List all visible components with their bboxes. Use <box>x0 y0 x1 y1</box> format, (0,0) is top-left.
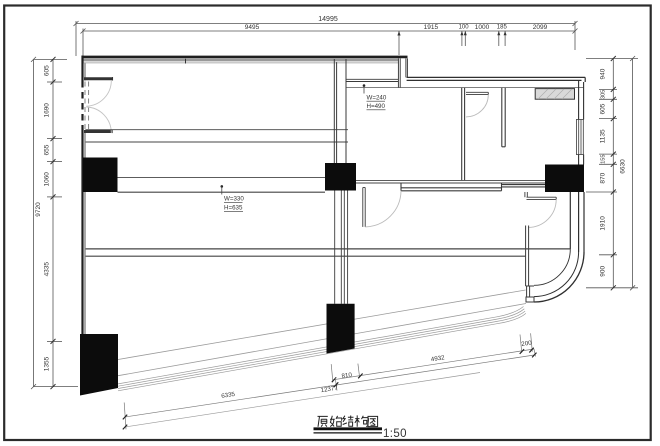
svg-text:605: 605 <box>44 65 51 76</box>
svg-text:605: 605 <box>600 103 607 114</box>
svg-text:155: 155 <box>601 155 607 164</box>
svg-text:4932: 4932 <box>430 354 445 363</box>
svg-text:12377: 12377 <box>320 385 339 395</box>
svg-text:W=330: W=330 <box>224 196 244 203</box>
svg-text:1060: 1060 <box>44 172 51 187</box>
svg-text:100: 100 <box>459 25 470 31</box>
svg-text:2099: 2099 <box>533 24 548 31</box>
svg-text:655: 655 <box>44 144 51 155</box>
svg-text:185: 185 <box>497 25 508 31</box>
svg-text:1690: 1690 <box>44 103 51 118</box>
svg-text:W=240: W=240 <box>367 95 387 102</box>
svg-text:1:50: 1:50 <box>383 428 407 440</box>
svg-text:1135: 1135 <box>600 129 607 143</box>
svg-text:200: 200 <box>521 340 533 349</box>
svg-text:305: 305 <box>601 90 607 99</box>
svg-text:1355: 1355 <box>44 356 51 371</box>
svg-text:1915: 1915 <box>424 24 439 31</box>
svg-text:870: 870 <box>600 172 607 183</box>
svg-text:6630: 6630 <box>620 159 627 174</box>
svg-text:4335: 4335 <box>44 262 51 277</box>
svg-text:6335: 6335 <box>221 391 236 400</box>
svg-text:940: 940 <box>600 68 607 79</box>
svg-text:H=635: H=635 <box>224 205 243 212</box>
svg-text:H=490: H=490 <box>367 103 386 110</box>
svg-text:810: 810 <box>341 372 353 381</box>
svg-text:9495: 9495 <box>245 24 260 31</box>
svg-text:14995: 14995 <box>318 16 338 23</box>
svg-text:1000: 1000 <box>475 24 490 31</box>
svg-text:1910: 1910 <box>600 216 607 231</box>
svg-text:9720: 9720 <box>35 202 42 217</box>
svg-text:900: 900 <box>600 265 607 276</box>
